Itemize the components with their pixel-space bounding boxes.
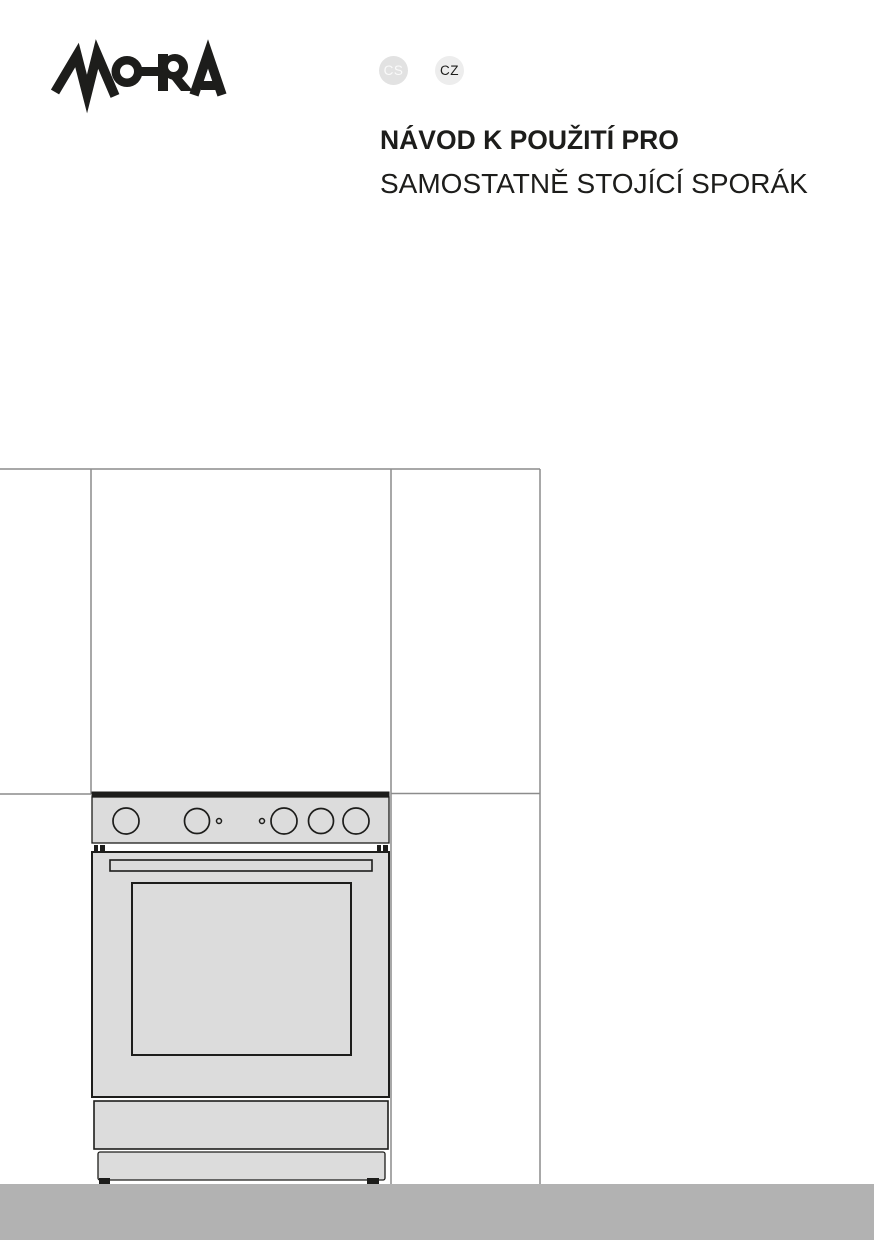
cooktop-edge — [92, 792, 390, 798]
storage-drawer — [94, 1101, 388, 1149]
indicator-dot-1 — [217, 819, 222, 824]
plinth — [98, 1152, 385, 1180]
control-knob-3 — [271, 808, 297, 834]
cooker — [92, 792, 390, 1185]
cooker-illustration — [0, 0, 874, 1240]
hinge-ticks — [94, 845, 388, 851]
control-knob-5 — [343, 808, 369, 834]
indicator-dot-2 — [260, 819, 265, 824]
control-knob-4 — [309, 809, 334, 834]
control-knob-2 — [185, 809, 210, 834]
control-knob-1 — [113, 808, 139, 834]
manual-cover-page: CS CZ NÁVOD K POUŽITÍ PRO SAMOSTATNĚ STO… — [0, 0, 874, 1240]
floor-band — [0, 1184, 874, 1240]
oven-window — [132, 883, 351, 1055]
door-handle — [110, 860, 372, 871]
